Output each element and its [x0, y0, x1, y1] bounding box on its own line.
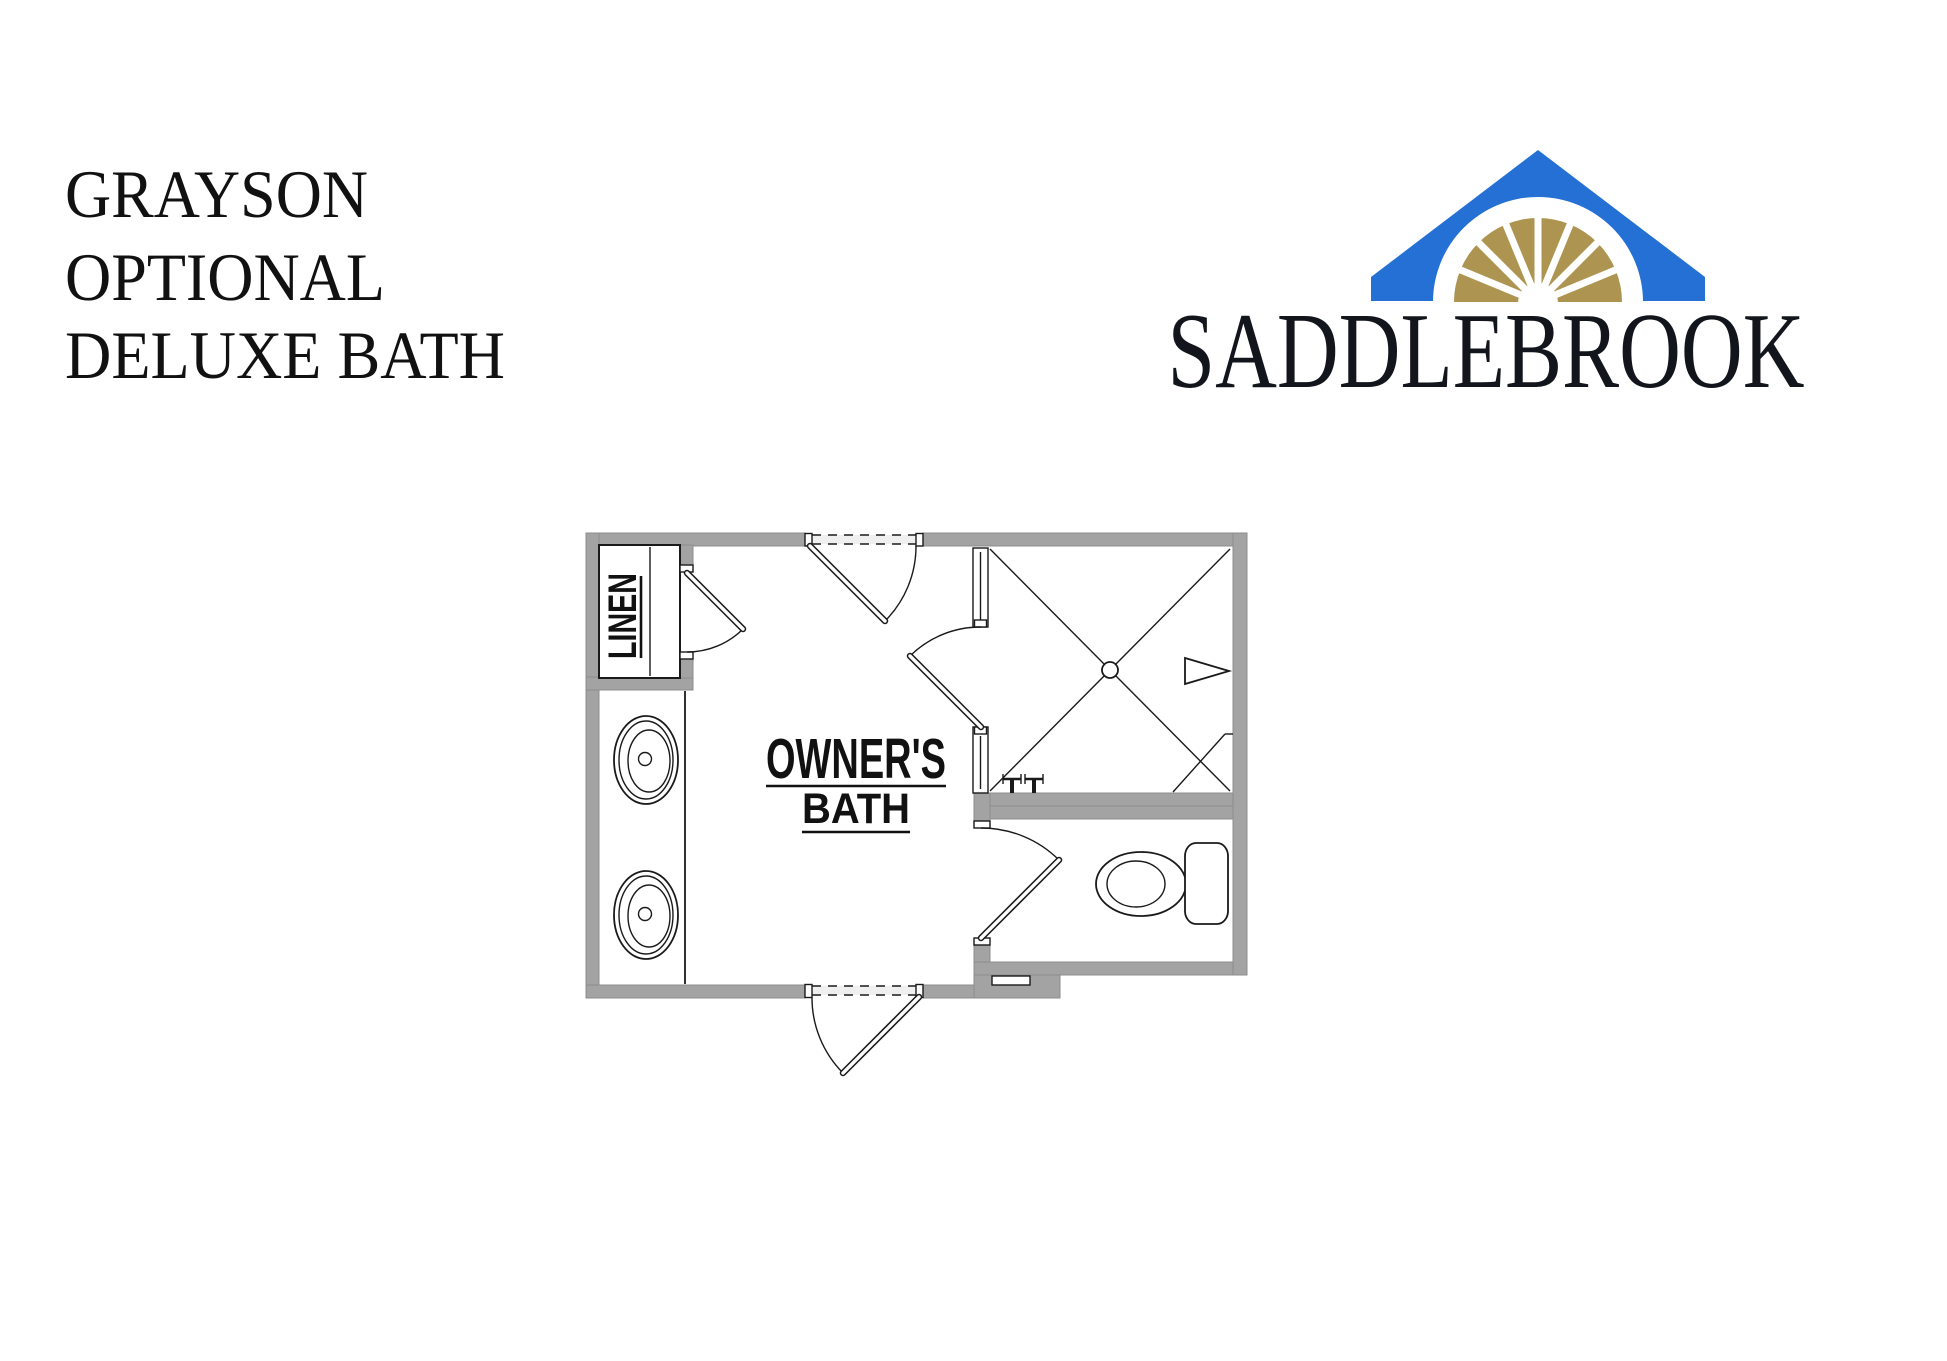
title-line-1: GRAYSON: [65, 156, 368, 232]
page: GRAYSON OPTIONAL DELUXE BATH SADDLEBROOK: [0, 0, 1947, 1361]
shower-faucet-icons: [1003, 774, 1043, 793]
title-block: GRAYSON OPTIONAL DELUXE BATH: [65, 156, 505, 393]
floor-plan: LINEN: [586, 533, 1247, 1073]
room-label-line2: BATH: [802, 785, 910, 833]
title-line-2: OPTIONAL: [65, 239, 385, 315]
title-line-3: DELUXE BATH: [65, 317, 505, 393]
linen-closet: LINEN: [599, 545, 743, 678]
saddlebrook-logo: SADDLEBROOK: [1168, 150, 1805, 411]
room-label-line1: OWNER'S: [766, 727, 946, 791]
toilet: [1096, 843, 1228, 924]
room-label: OWNER'S BATH: [766, 727, 946, 833]
shower-drain: [1102, 662, 1118, 678]
wall-notch: [992, 976, 1030, 985]
logo-wordmark: SADDLEBROOK: [1168, 292, 1805, 411]
sink-1: [614, 716, 678, 804]
shower: [910, 548, 1233, 793]
sink-2: [614, 871, 678, 959]
door-opening-bottom: [805, 985, 923, 1074]
shower-head-icon: [1185, 658, 1229, 684]
wc-door: [974, 821, 1059, 945]
shower-glass-panel-top: [973, 548, 988, 627]
vanity-double-sink: [614, 691, 685, 984]
door-opening-top: [805, 534, 923, 622]
shower-glass-panel-bottom: [973, 727, 988, 793]
toilet-tank: [1185, 843, 1228, 924]
linen-label: LINEN: [601, 573, 645, 659]
shower-door: [910, 627, 981, 727]
